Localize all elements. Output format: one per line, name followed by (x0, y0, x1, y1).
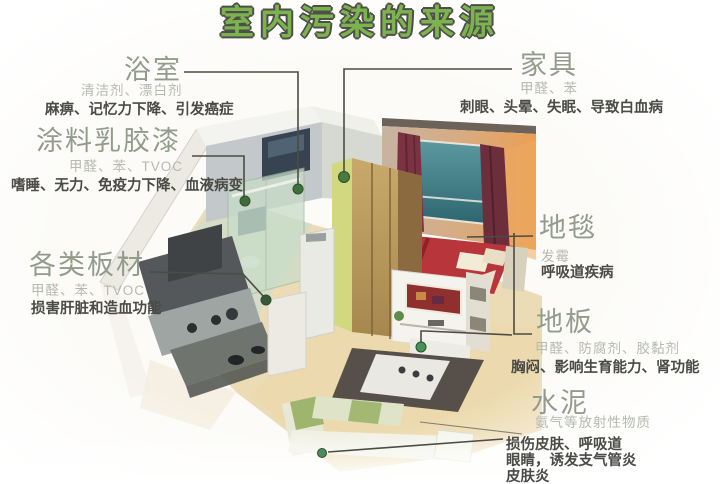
pointer-dot-boards (261, 295, 271, 305)
label-floor-harms: 胸闷、影响生育能力、肾功能 (511, 361, 700, 376)
label-paint-harms: 嗜睡、无力、免疫力下降、血液病变 (11, 179, 243, 194)
label-paint-pollutants: 甲醛、苯、TVOC (69, 160, 183, 174)
room-illustration (0, 0, 720, 484)
pointer-dot-furniture (339, 172, 350, 183)
label-cement-pollutants: 氨气等放射性物质 (535, 416, 651, 430)
label-bathroom-title: 浴室 (124, 56, 182, 84)
label-cement-harms-3: 皮肤炎 (506, 470, 550, 484)
label-cement-harms-1: 损伤皮肤、呼吸道 (506, 438, 622, 453)
label-furniture-harms: 刺眼、头晕、失眠、导致白血病 (460, 101, 663, 116)
label-bathroom-harms: 麻痹、记忆力下降、引发癌症 (45, 103, 234, 118)
label-floor-pollutants: 甲醛、防腐剂、胶黏剂 (535, 342, 680, 356)
label-boards-title: 各类板材 (29, 251, 145, 279)
label-cement-title: 水泥 (531, 389, 589, 417)
label-boards-harms: 损害肝脏和造血功能 (31, 302, 162, 317)
label-carpet-title: 地毯 (539, 214, 597, 242)
infographic-indoor-pollution: 室内污染的来源 浴室 清洁剂、漂白剂 麻痹、记忆力下降、引发癌症 涂料乳胶漆 甲… (0, 0, 720, 484)
label-furniture-title: 家具 (520, 51, 578, 79)
connector-carpet (467, 236, 533, 237)
pointer-dot-bathroom (293, 184, 303, 194)
label-boards-pollutants: 甲醛、苯、TVOC (31, 284, 145, 298)
pointer-dot-floor (416, 342, 426, 352)
label-carpet-harms: 呼吸道疾病 (541, 266, 614, 281)
label-furniture-pollutants: 甲醛、苯 (520, 82, 578, 96)
vignette (0, 0, 720, 484)
label-paint-title: 涂料乳胶漆 (36, 127, 181, 155)
label-bathroom-pollutants: 清洁剂、漂白剂 (81, 84, 183, 98)
page-title: 室内污染的来源 (220, 6, 500, 42)
label-cement-harms-2: 眼睛，诱发支气管炎 (506, 454, 637, 469)
label-floor-title: 地板 (536, 308, 594, 336)
pointer-dot-paint (240, 196, 250, 206)
pointer-dot-cement (318, 449, 327, 458)
label-carpet-pollutants: 发霉 (541, 250, 570, 264)
